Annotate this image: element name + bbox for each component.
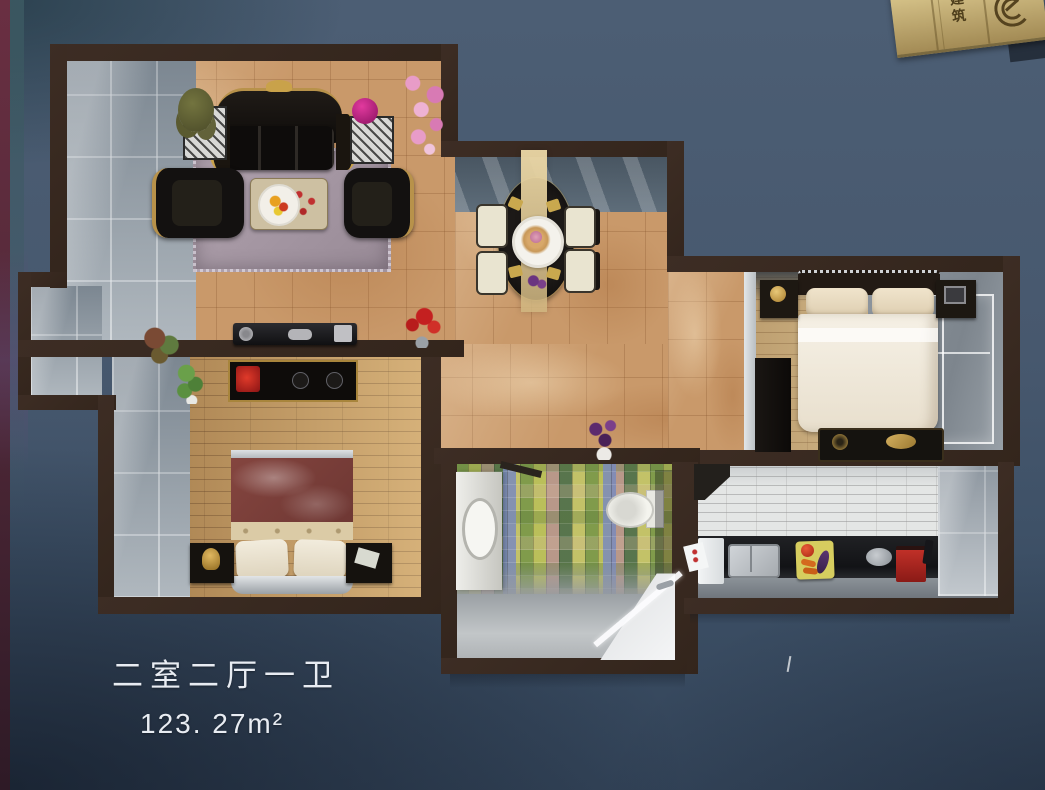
- bathroom-sink: [462, 498, 498, 560]
- kitchen-sink-divider: [750, 546, 752, 572]
- toilet-bowl: [606, 492, 654, 528]
- bench-gold-clock: [832, 434, 848, 450]
- bedroom2-lace-band: [231, 522, 353, 540]
- dining-chair-top-right: [564, 206, 596, 248]
- hallway-purple-flowers: [582, 416, 628, 460]
- wall-bedroom2-bottom: [98, 597, 438, 614]
- bedroom2-speaker-2: [326, 372, 343, 389]
- wall-dining-top: [441, 141, 684, 157]
- wall-kitchen-bottom: [684, 598, 1014, 614]
- master-lamp-left: [770, 286, 786, 302]
- wall-dining-right: [667, 141, 684, 272]
- red-appliance: [896, 546, 926, 582]
- bedroom2-plant: [172, 360, 208, 404]
- armchair-left-cushion: [172, 180, 222, 226]
- dining-chair-bottom-left: [476, 251, 508, 295]
- plaque-rule-1: [929, 0, 939, 50]
- caption-area: 123. 27m²: [140, 708, 284, 740]
- bench-gold-ornament: [886, 434, 916, 449]
- bedroom2-gold-lamp: [202, 548, 220, 570]
- red-flower-vase: [398, 306, 446, 348]
- wall-bathroom-left: [441, 448, 457, 674]
- wall-kitchen-right: [998, 462, 1014, 614]
- tomato: [801, 544, 814, 557]
- plaque-rule-3: [981, 0, 991, 44]
- bedroom2-pillow-right: [293, 539, 346, 579]
- model-reflection-kitchen: [690, 614, 1010, 624]
- bedroom2-duvet-maroon: [231, 458, 353, 524]
- dining-plate-garnish: [530, 231, 542, 243]
- tv-soundbar-dial: [239, 327, 253, 341]
- kitchen-pot: [866, 548, 892, 566]
- wall-living-left: [50, 44, 67, 288]
- wall-bedroom2-left: [98, 395, 114, 614]
- caption-layout-type: 二室二厅一卫: [112, 650, 340, 695]
- sofa-seat-cushions: [224, 126, 334, 170]
- kitchen-door-glass: [938, 464, 1000, 596]
- model-reflection-bath: [450, 674, 685, 688]
- fruit-plate: [258, 184, 300, 226]
- master-wardrobe: [755, 358, 791, 452]
- wall-bathroom-top: [434, 448, 700, 464]
- tv-soundbar-knobs: [288, 329, 312, 340]
- wall-master-right: [1003, 256, 1020, 466]
- potted-plant-olive: [178, 88, 214, 132]
- dining-posy-purple: [525, 272, 549, 294]
- bedroom2-tv-red-speaker: [236, 366, 260, 392]
- bedroom2-pillow-left: [235, 539, 289, 580]
- bedroom2-headboard: [231, 576, 353, 594]
- photo-of-apartment-model: 建筑 二室二厅一卫 123. 27m²: [0, 0, 1045, 790]
- master-bed-fold: [798, 328, 938, 342]
- pink-flower-arrangement: [396, 70, 452, 158]
- kitchen-sink: [728, 544, 780, 578]
- dining-chair-top-left: [476, 204, 508, 248]
- bedroom2-speaker-1: [292, 372, 309, 389]
- sofa-gold-crest: [266, 80, 292, 92]
- armchair-right-cushion: [352, 182, 392, 226]
- plaque-vertical-text: 建筑: [946, 0, 970, 26]
- master-nightstand-frame: [944, 286, 966, 304]
- wall-bedroom2-right: [421, 357, 441, 614]
- wall-bathroom-bottom: [441, 658, 687, 674]
- potted-plant-magenta: [352, 98, 378, 124]
- wall-living-top: [50, 44, 458, 61]
- tv-soundbar-end: [334, 325, 352, 342]
- dining-chair-bottom-right: [564, 249, 596, 293]
- side-table-right: [350, 116, 394, 164]
